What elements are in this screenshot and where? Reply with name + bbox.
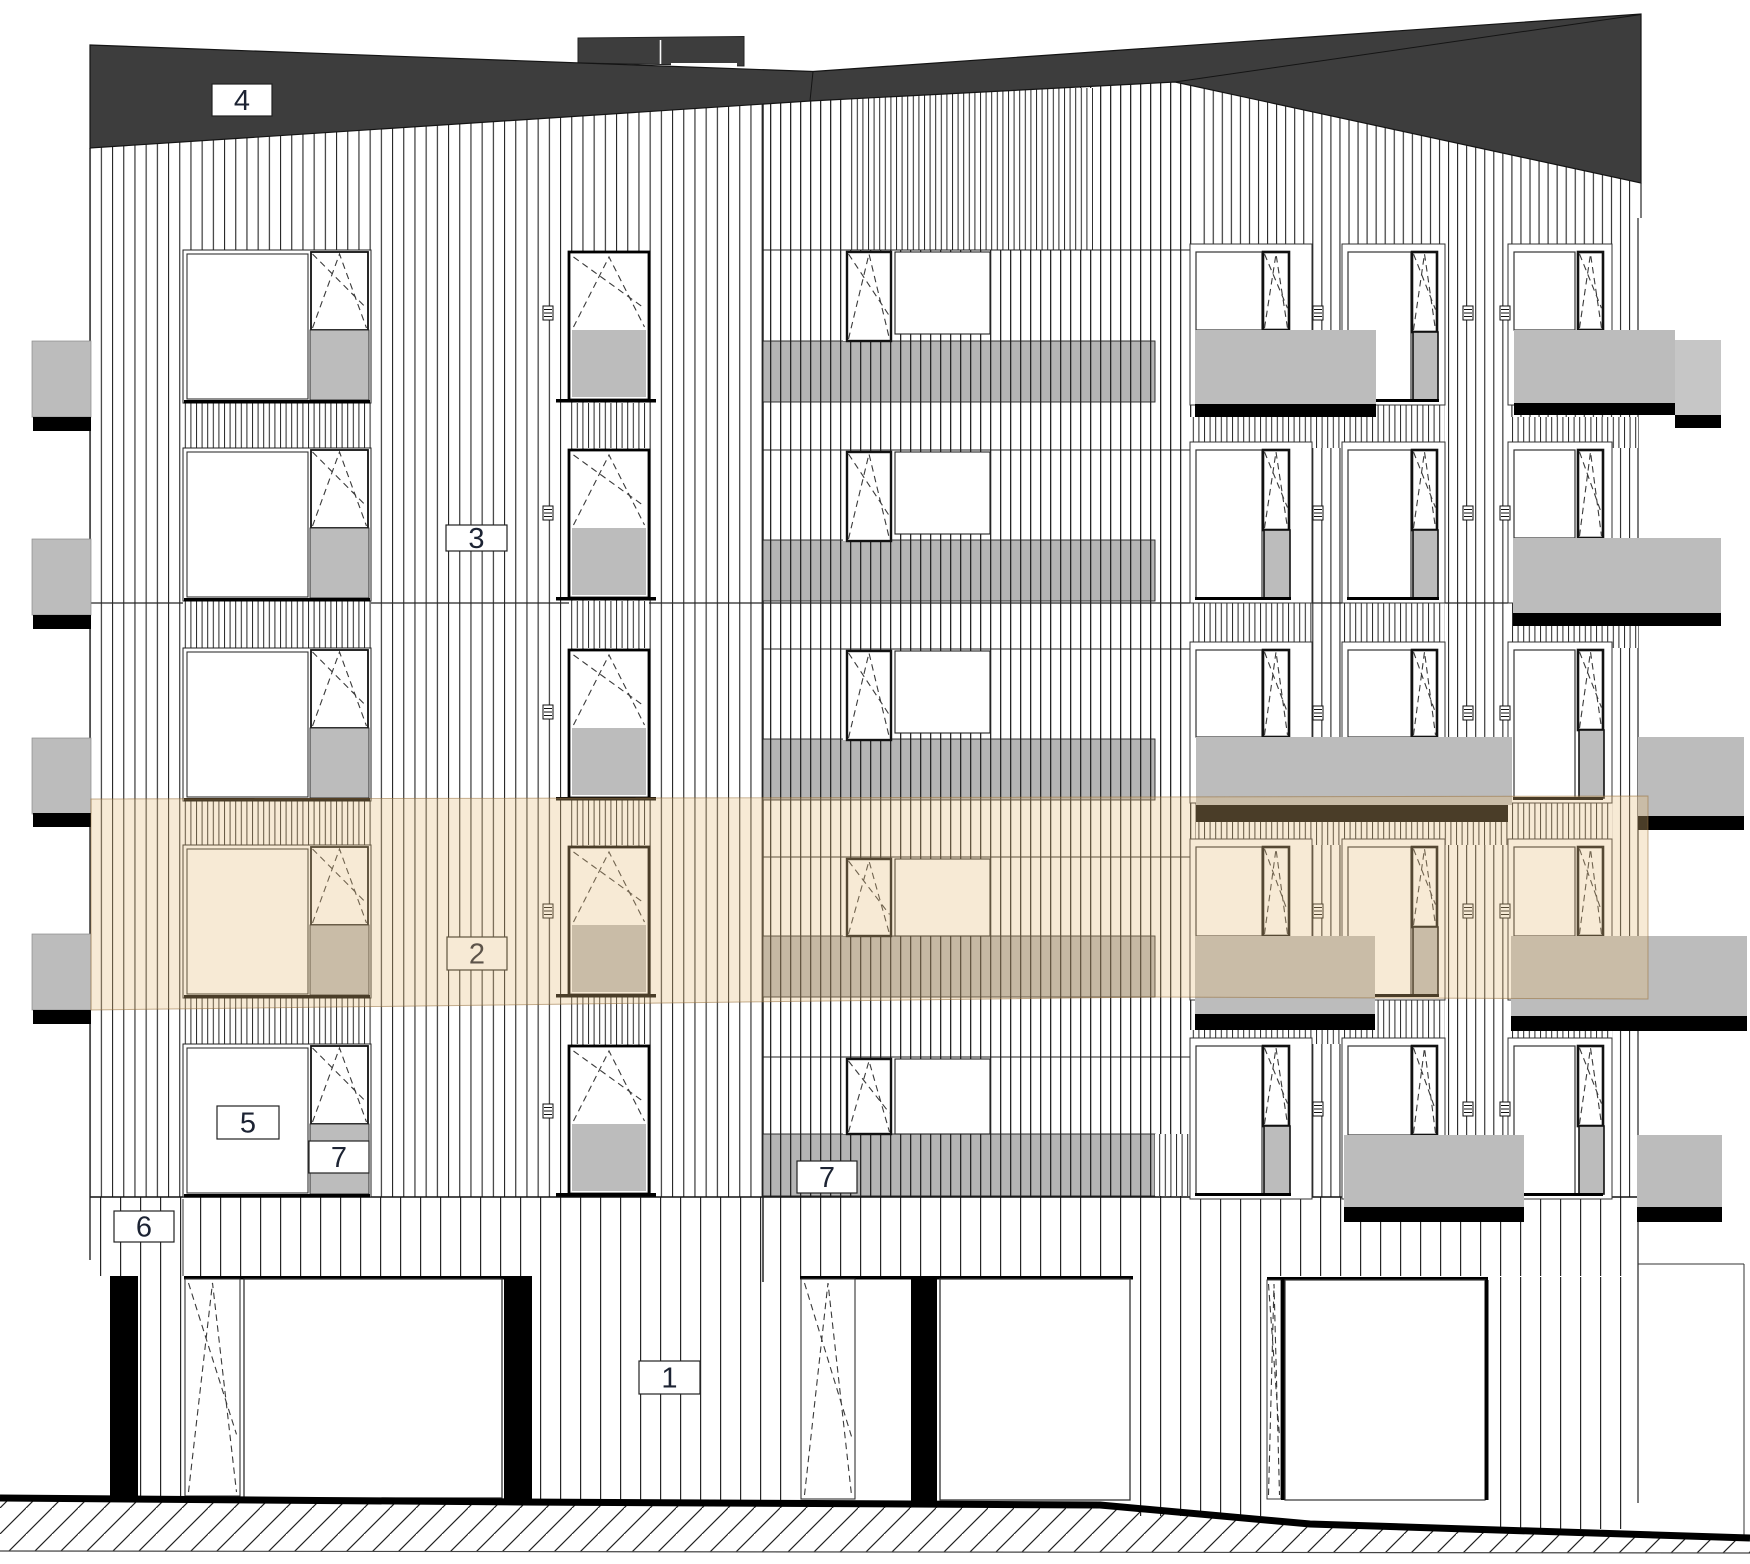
svg-text:5: 5 — [240, 1108, 256, 1140]
svg-text:6: 6 — [136, 1212, 152, 1244]
svg-text:7: 7 — [819, 1162, 835, 1194]
svg-text:7: 7 — [331, 1142, 347, 1174]
svg-text:1: 1 — [661, 1363, 677, 1395]
svg-text:4: 4 — [234, 85, 250, 117]
svg-text:3: 3 — [468, 523, 484, 555]
